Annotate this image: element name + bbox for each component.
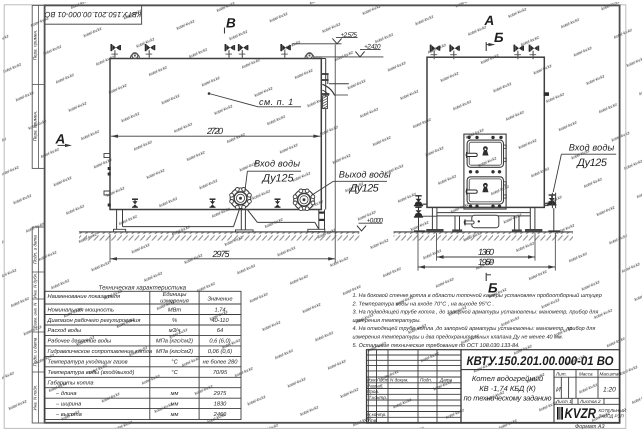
svg-text:+2.410: +2.410	[364, 44, 381, 51]
svg-text:%: %	[172, 318, 177, 324]
svg-text:1. На боковой стенке котла в: 1. На боковой стенке котла в области топ…	[353, 292, 602, 299]
svg-text:Расход воды: Расход воды	[48, 327, 82, 334]
svg-text:Б: Б	[494, 30, 504, 45]
svg-text:Подп.: Подп.	[420, 378, 432, 383]
svg-text:измерения: измерения	[160, 298, 188, 304]
svg-text:Температура воды (вход/выход): Температура воды (вход/выход)	[48, 369, 135, 376]
svg-text:Формат А3: Формат А3	[575, 424, 605, 430]
svg-text:В: В	[226, 15, 236, 30]
svg-text:Диапазон рабочего регулировани: Диапазон рабочего регулирования	[47, 317, 141, 324]
svg-text:Масштаб: Масштаб	[600, 371, 622, 376]
svg-text:1950: 1950	[478, 257, 494, 267]
svg-text:Разраб.: Разраб.	[367, 383, 384, 388]
svg-text:Листов 2: Листов 2	[579, 399, 601, 404]
svg-text:2. Температура воды на входе: 2. Температура воды на входе 70°С , на в…	[352, 301, 495, 307]
svg-text:мм: мм	[171, 391, 179, 397]
svg-text:Перв. примен.: Перв. примен.	[32, 111, 37, 142]
svg-text:Выход воды: Выход воды	[339, 169, 391, 179]
svg-text:КВТУ.150.201.00.000-01 ВО: КВТУ.150.201.00.000-01 ВО	[45, 10, 142, 19]
svg-text:2720: 2720	[206, 126, 223, 136]
svg-text:– длина: – длина	[55, 390, 77, 397]
svg-text:0,6 (6,0): 0,6 (6,0)	[209, 338, 230, 345]
svg-text:Т.контр.: Т.контр.	[369, 395, 388, 400]
svg-text:измерения температуры.: измерения температуры.	[353, 318, 421, 324]
svg-text:КВ -1,74 КБД (К): КВ -1,74 КБД (К)	[479, 384, 536, 393]
svg-text:Единицы: Единицы	[163, 291, 188, 298]
svg-text:МВт: МВт	[168, 307, 182, 313]
svg-text:Лист 1: Лист 1	[555, 399, 572, 404]
svg-text:Н.контр.: Н.контр.	[367, 412, 386, 417]
svg-text:70/95: 70/95	[213, 369, 228, 376]
svg-text:КОТЕЛЬНЫЙ: КОТЕЛЬНЫЙ	[599, 408, 627, 413]
svg-text:мм: мм	[171, 412, 179, 418]
svg-text:2975: 2975	[212, 249, 231, 259]
svg-text:2975: 2975	[213, 391, 227, 397]
svg-text:64: 64	[217, 328, 223, 334]
svg-text:°С: °С	[171, 370, 178, 376]
svg-text:МПа (кгс/см2): МПа (кгс/см2)	[156, 348, 193, 355]
svg-text:Изм.Лист: Изм.Лист	[367, 378, 389, 383]
svg-text:Техническая характеристика: Техническая характеристика	[99, 285, 187, 292]
svg-text:А: А	[484, 13, 495, 28]
svg-text:И: И	[556, 387, 561, 394]
svg-text:ЗАВОД РЭП: ЗАВОД РЭП	[599, 413, 625, 418]
svg-text:Перв. примен.: Перв. примен.	[32, 30, 37, 61]
svg-text:+2.575: +2.575	[340, 32, 357, 39]
svg-text:Ду125: Ду125	[576, 157, 608, 169]
svg-text:Подп. и дата: Подп. и дата	[32, 337, 37, 366]
svg-text:Габариты котла: Габариты котла	[48, 380, 94, 387]
svg-text:1830: 1830	[214, 401, 227, 407]
svg-text:МПа (кгс/см2): МПа (кгс/см2)	[156, 338, 193, 345]
svg-text:KVZR: KVZR	[565, 405, 597, 421]
svg-text:2460: 2460	[213, 412, 227, 418]
svg-text:1,74: 1,74	[214, 307, 225, 313]
svg-text:Вход воды: Вход воды	[254, 158, 300, 168]
svg-text:м3/ч: м3/ч	[169, 327, 181, 334]
svg-text:Подп. и дата: Подп. и дата	[32, 235, 37, 264]
svg-text:0,06 (0,6): 0,06 (0,6)	[208, 348, 232, 355]
svg-text:Взам. инв. N: Взам. инв. N	[32, 302, 37, 328]
svg-text:40-110: 40-110	[211, 318, 229, 324]
svg-text:Гидравлическое сопротивление к: Гидравлическое сопротивление котла	[48, 348, 153, 355]
svg-text:Ду125: Ду125	[262, 172, 295, 184]
svg-text:Номинальная мощность: Номинальная мощность	[48, 307, 114, 313]
svg-text:измерения температуры и два пр: измерения температуры и два предохраните…	[353, 335, 564, 341]
svg-text:1:20: 1:20	[603, 387, 616, 394]
svg-text:Ду125: Ду125	[349, 182, 380, 194]
svg-text:Вход воды: Вход воды	[569, 143, 615, 153]
svg-text:мм: мм	[171, 401, 179, 407]
svg-text:Температура уходящих газов: Температура уходящих газов	[48, 359, 128, 366]
svg-text:Дата: Дата	[439, 378, 453, 383]
svg-text:Значение: Значение	[208, 296, 233, 302]
svg-text:КВТУ.150.201.00.000-01 ВО: КВТУ.150.201.00.000-01 ВО	[467, 354, 614, 368]
svg-text:°С: °С	[171, 360, 178, 366]
svg-text:А: А	[55, 131, 66, 146]
svg-text:см. п. 1: см. п. 1	[259, 97, 294, 107]
svg-text:по техническому заданию: по техническому заданию	[464, 394, 552, 403]
svg-text:+0.000: +0.000	[367, 217, 384, 224]
svg-text:– ширина: – ширина	[55, 401, 81, 407]
svg-text:Инв. N дубл.: Инв. N дубл.	[32, 273, 37, 298]
svg-text:Масса: Масса	[579, 371, 593, 376]
svg-text:4. На отводящей трубе котла ,: 4. На отводящей трубе котла ,до запорной…	[353, 325, 596, 332]
svg-text:1360: 1360	[478, 247, 494, 257]
svg-text:3. На подводящей трубе котла: 3. На подводящей трубе котла , до запорн…	[353, 309, 599, 316]
svg-text:Утв.: Утв.	[367, 418, 377, 423]
svg-text:Котел водогрейный: Котел водогрейный	[472, 374, 544, 383]
svg-text:– высота: – высота	[55, 412, 82, 418]
svg-text:Лит.: Лит.	[555, 371, 567, 376]
svg-text:N докум.: N докум.	[390, 378, 409, 383]
svg-text:Инв. N подл.: Инв. N подл.	[32, 385, 37, 411]
svg-text:Пров.: Пров.	[367, 389, 379, 394]
svg-text:5. Остальные технические треб: 5. Остальные технические требования по О…	[353, 342, 520, 349]
svg-text:Наименование показателя: Наименование показателя	[48, 294, 121, 300]
svg-text:не более 280: не более 280	[203, 359, 239, 366]
svg-text:Рабочее давление воды: Рабочее давление воды	[48, 338, 113, 345]
